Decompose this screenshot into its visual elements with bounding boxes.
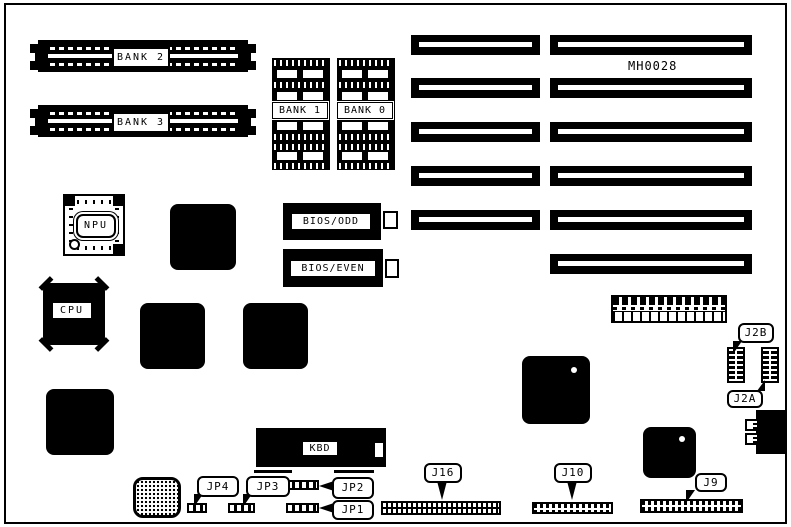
callout-pointer [567,481,577,500]
connector-j16 [381,501,501,515]
bios-odd-label: BIOS/ODD [290,212,372,231]
dip-pin-row [274,82,328,88]
jumper-jp1 [286,503,319,513]
isa-slot [550,78,752,98]
kbd-socket-notch [373,441,385,459]
simm-latch-right [247,109,256,135]
isa-slot [550,122,752,142]
callout-j9: J9 [695,473,727,492]
qfp-chip [46,389,114,455]
dip-chip-pair [272,92,330,100]
npu-label: NPU [76,214,116,238]
board-part-number: MH0028 [628,59,677,73]
pin-row-segment [334,470,374,473]
isa-slot [550,210,752,230]
qfp-chip [140,303,205,369]
dram-bank1-column: BANK 1 [272,58,330,170]
isa-slot [411,166,540,186]
dip-chip-pair [272,70,330,78]
dip-chip-pair [272,122,330,130]
isa-slot [411,78,540,98]
cpu-label: CPU [53,303,91,318]
jumper-jp2 [286,480,319,490]
power-tab [745,433,759,445]
callout-jp4: JP4 [197,476,239,497]
bios-odd-chip: BIOS/ODD [283,203,381,240]
pin1-marker [679,436,685,442]
bios-odd-socket-notch [383,211,398,229]
callout-j10: J10 [554,463,592,483]
dip-chip-pair [337,122,395,130]
kbd-chip: KBD [256,428,386,467]
dram-bank0-column: BANK 0 [337,58,395,170]
socket-corner [113,244,123,254]
dip-pin-row [339,163,393,169]
isa-slot [411,122,540,142]
dip-pin-row [339,60,393,66]
simm-slot-bank3: BANK 3 [30,103,256,139]
power-tab [745,419,759,431]
pin1-marker [571,367,577,373]
dip-chip-pair [337,152,395,160]
simm-slot-bank2: BANK 2 [30,38,256,74]
socket-pin-row [77,200,111,204]
callout-j2a: J2A [727,390,763,408]
qfp-chip [522,356,590,424]
callout-jp1: JP1 [332,500,374,520]
bank0-label: BANK 0 [337,102,393,119]
bios-even-chip: BIOS/EVEN [283,249,383,287]
bank3-label: BANK 3 [112,112,170,133]
qfp-chip [643,427,696,478]
kbd-label: KBD [302,441,338,456]
power-connector [756,410,786,454]
dip-pin-row [339,144,393,150]
qfp-chip [243,303,308,369]
dip-pin-row [274,134,328,140]
dip-pin-row [339,134,393,140]
callout-pointer [686,490,695,503]
socket-pin-row [77,246,111,250]
callout-jp3: JP3 [246,476,290,497]
dip-pin-row [339,82,393,88]
callout-j2b: J2B [738,323,774,343]
isa-slot [411,35,540,55]
pin1-marker [69,239,80,250]
socket-corner [113,196,123,206]
dip-pin-row [274,144,328,150]
dip-chip-pair [272,152,330,160]
qfp-chip [170,204,236,270]
npu-socket: NPU [63,194,125,256]
cpu-chip: CPU [43,283,105,345]
dip-pin-row [274,60,328,66]
callout-jp2: JP2 [332,477,374,499]
isa-slot [550,254,752,274]
connector-j10 [532,502,613,514]
bios-even-socket-notch [385,259,399,278]
bank1-label: BANK 1 [272,102,328,119]
socket-pin-row [69,208,73,242]
isa-slot [550,166,752,186]
callout-pointer [733,341,742,354]
isa-slot [550,35,752,55]
simm-latch-right [247,44,256,70]
dip-chip-pair [337,92,395,100]
config-pin-strip [611,295,727,323]
header-j2a [761,347,779,383]
callout-pointer [437,481,447,500]
dip-chip-pair [337,70,395,78]
crystal-component [133,477,181,518]
bank2-label: BANK 2 [112,47,170,68]
isa-slot [411,210,540,230]
socket-corner [65,196,75,206]
callout-j16: J16 [424,463,462,483]
dip-pin-row [274,163,328,169]
simm-latch-left [30,44,39,70]
bios-even-label: BIOS/EVEN [289,259,377,278]
simm-latch-left [30,109,39,135]
pin-row-segment [254,470,292,473]
